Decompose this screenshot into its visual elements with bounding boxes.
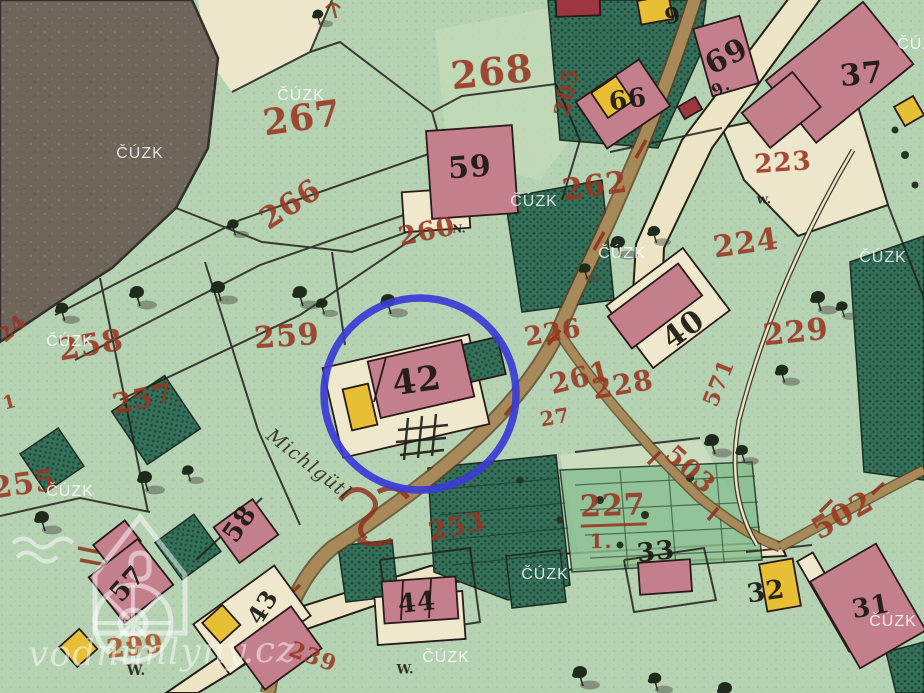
site-watermark: vodnimlyny.cz	[28, 630, 289, 676]
map-artwork	[0, 0, 924, 693]
map-canvas[interactable]: 2682672662602622232242292592582572552262…	[0, 0, 924, 693]
